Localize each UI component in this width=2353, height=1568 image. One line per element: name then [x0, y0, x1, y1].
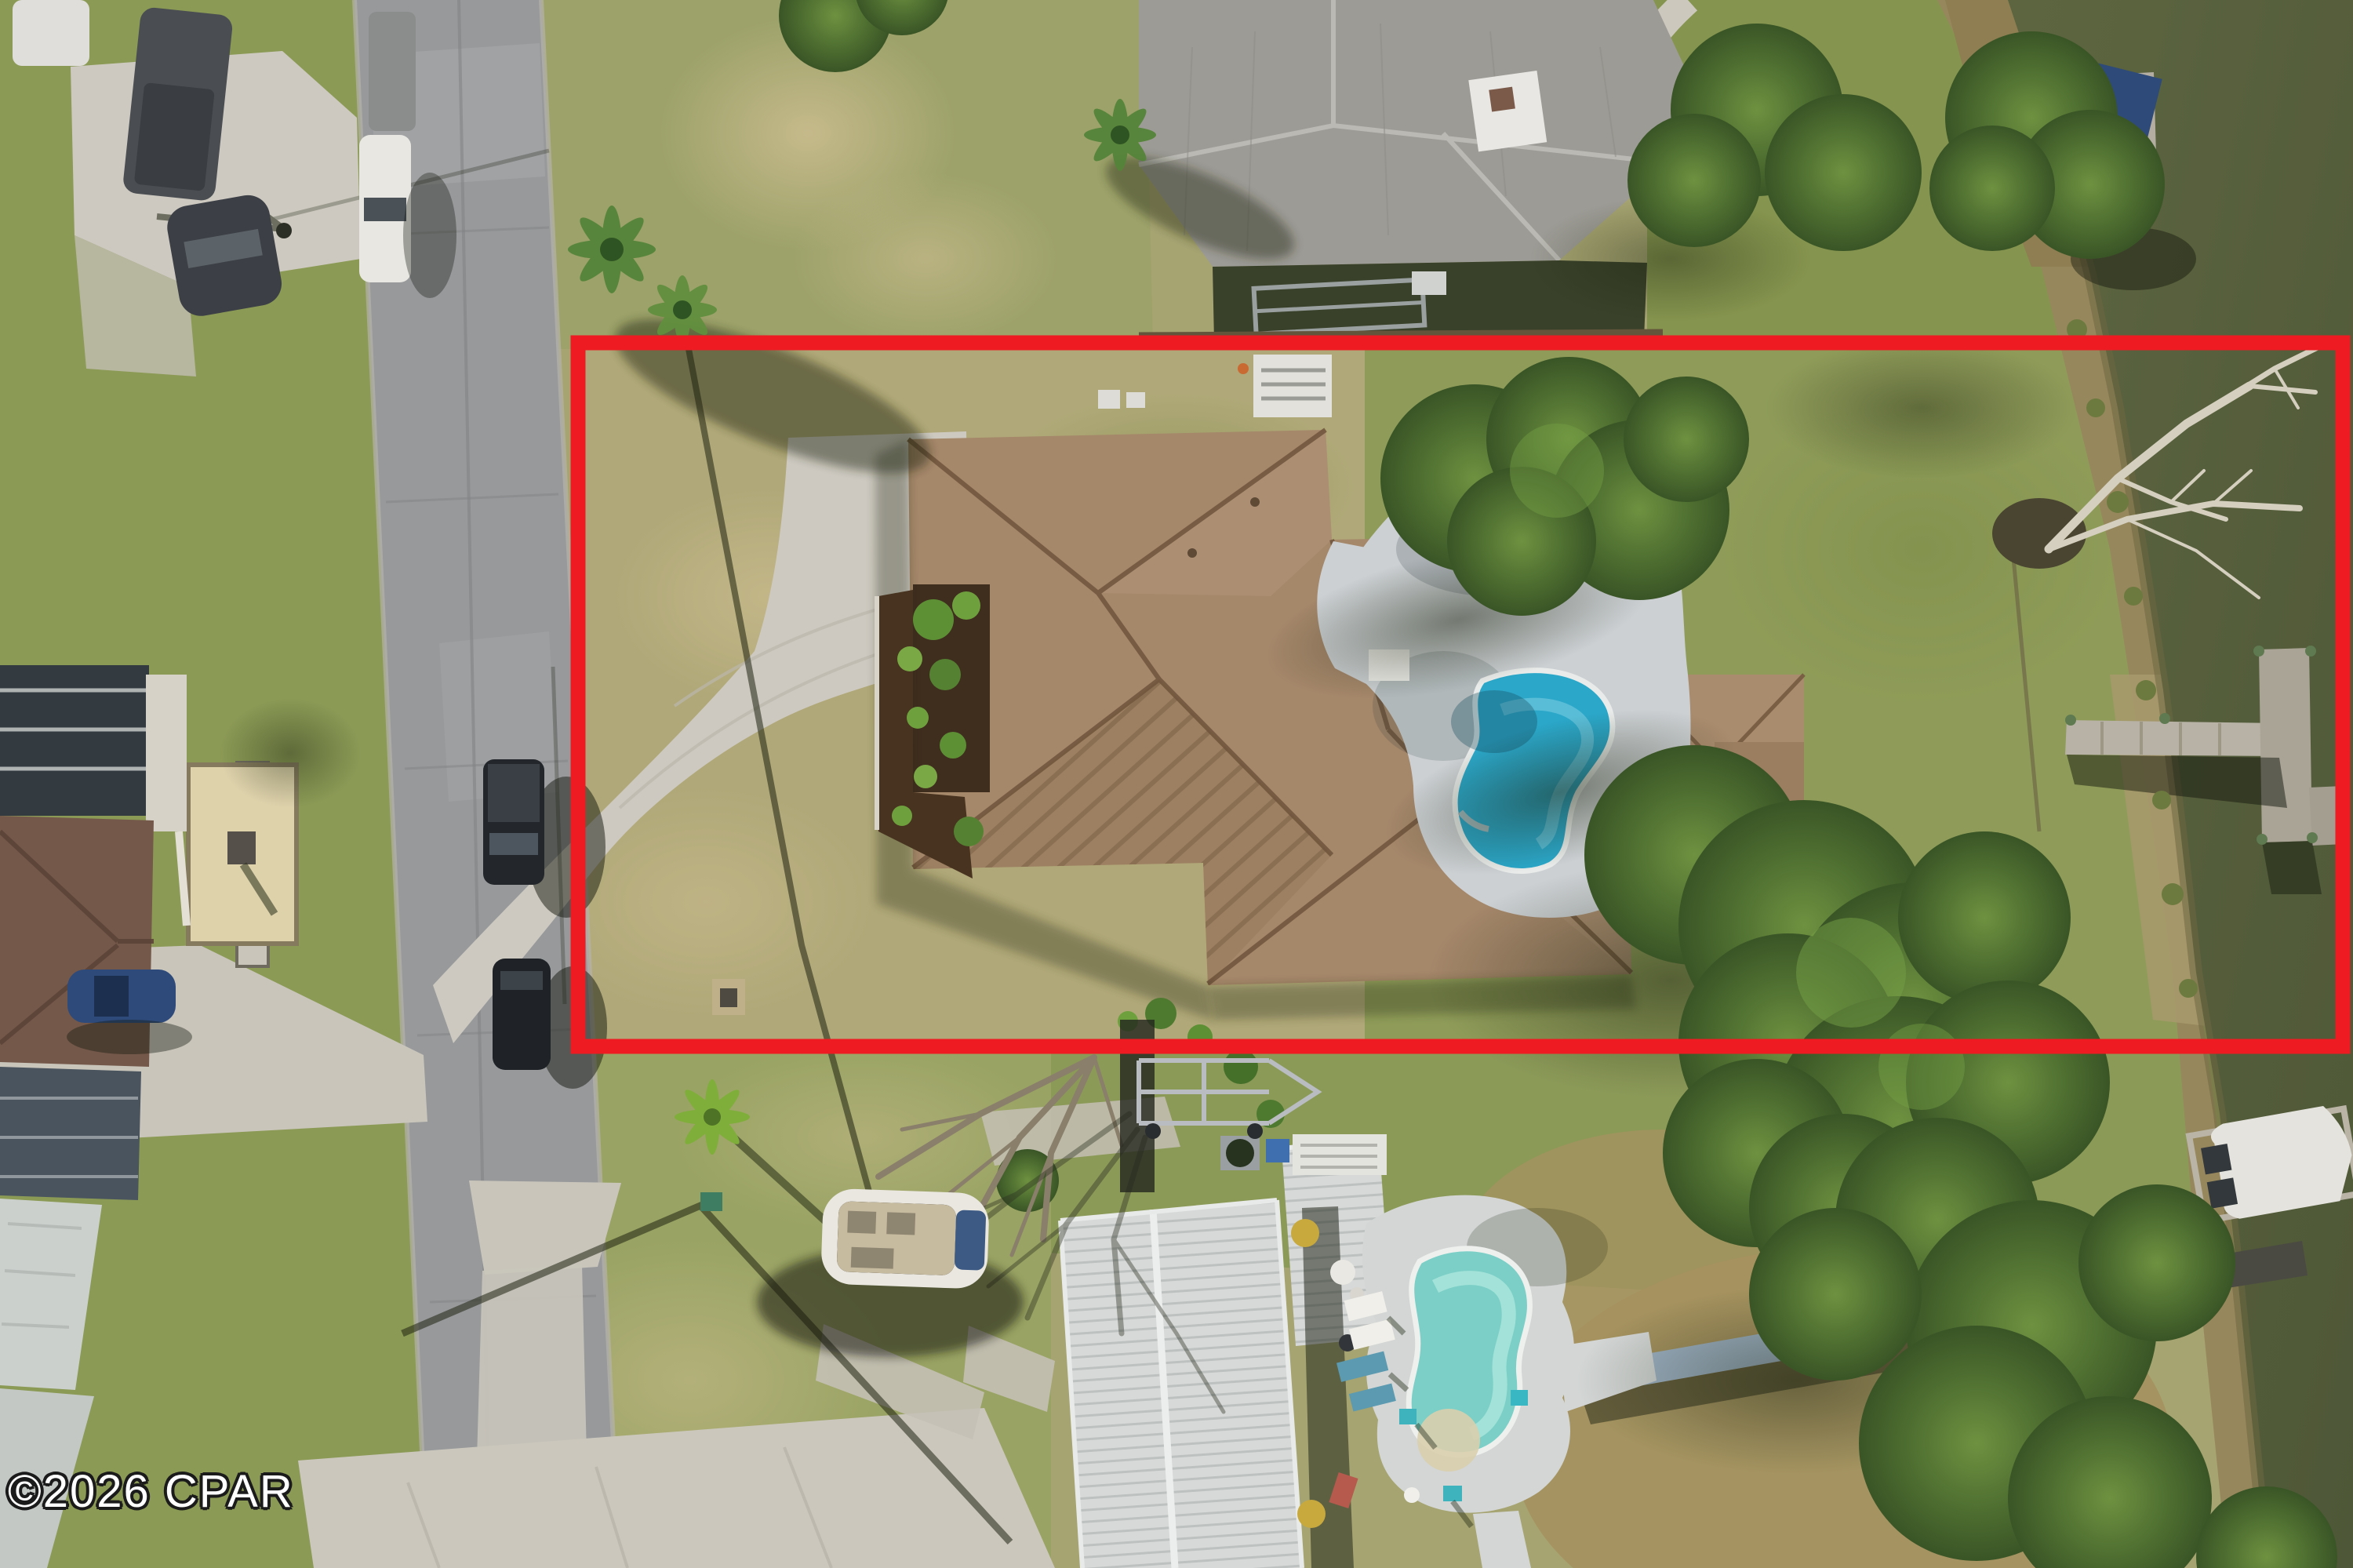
parked-dark-suv [493, 959, 607, 1089]
aerial-photo: ©2026 CPAR [0, 0, 2353, 1568]
parked-truck-bed [13, 0, 89, 66]
watermark: ©2026 CPAR [8, 1465, 294, 1518]
parked-dark-car [164, 191, 285, 319]
parked-blue-car [67, 970, 192, 1054]
street-light-head [276, 223, 292, 238]
trash-bin [700, 1192, 722, 1211]
